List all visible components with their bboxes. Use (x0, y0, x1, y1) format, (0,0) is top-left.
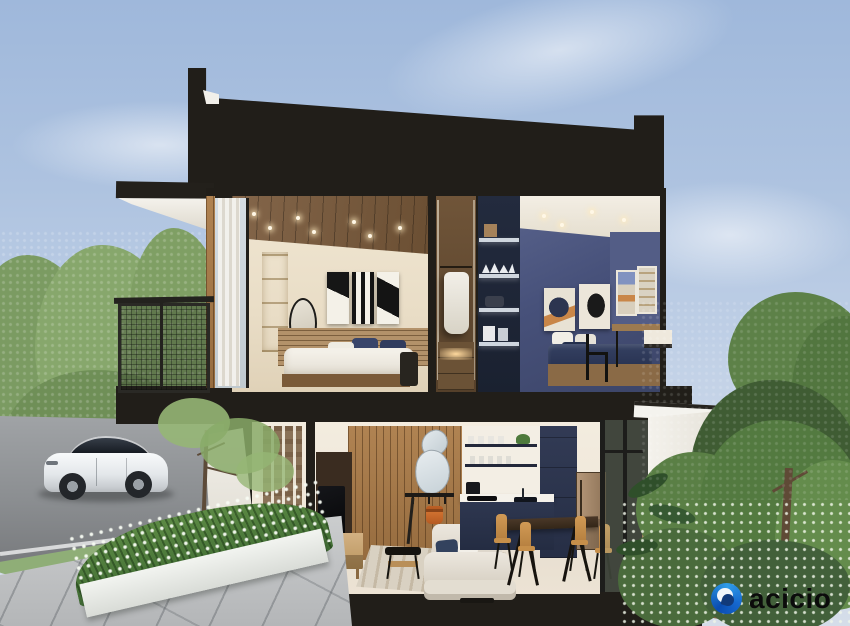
shelf-dishes (468, 436, 508, 444)
dining-chair (566, 516, 588, 596)
ceiling-light (252, 212, 256, 216)
coat-hook (444, 497, 446, 504)
artwork-triptych (327, 272, 399, 324)
decor-books (498, 328, 508, 341)
art-panel (327, 272, 349, 324)
ceiling-light (560, 223, 564, 227)
shelf-plant (516, 434, 530, 444)
coffee-table-shelf (388, 561, 418, 567)
shelf-board (479, 238, 519, 242)
bedroom-wood-ceiling (232, 196, 428, 254)
overhang-slab (116, 181, 214, 200)
artwork-bird (579, 284, 610, 329)
foliage-speckle (640, 300, 850, 500)
scene: acicio (0, 0, 850, 626)
ceiling-light (296, 216, 300, 220)
hanging-shirt (444, 272, 469, 334)
ceiling-light (368, 234, 372, 238)
shelf-board (479, 308, 519, 312)
coat-hook (428, 497, 430, 504)
kitchen-shelf (465, 464, 537, 467)
walk-in-closet (436, 196, 476, 392)
balcony-mesh-railing (118, 303, 210, 393)
kitchen-shelf (465, 444, 537, 447)
car-wheel-front (59, 473, 86, 500)
display-shelf-column (478, 196, 520, 392)
artwork-small (616, 270, 637, 316)
decor-box (484, 224, 497, 237)
dining-chair (518, 522, 540, 602)
orange-bag (426, 506, 443, 524)
overhang-soffit (118, 198, 214, 232)
brand-logo-text: acicio (749, 583, 831, 614)
balcony-post (160, 303, 163, 387)
ceiling-light (312, 230, 316, 234)
shelf-board (479, 342, 519, 346)
decor-sculpture-white (482, 262, 515, 273)
fridge-handle (580, 480, 582, 520)
dining-chair (494, 514, 516, 594)
ceiling-light (542, 214, 546, 218)
coffee-table-top (385, 547, 421, 555)
decor-object-dark (485, 296, 504, 307)
car-headlight (46, 461, 58, 465)
ceiling-light (268, 226, 272, 230)
sofa-base-foot (460, 598, 494, 603)
swirl-circle-icon (711, 583, 742, 614)
faucet (522, 488, 524, 499)
ceiling-light (590, 210, 594, 214)
ceiling-light (352, 220, 356, 224)
artwork-hat (544, 288, 575, 331)
desk-leg (616, 331, 618, 367)
chair-frame (586, 334, 589, 380)
ceiling-light (622, 218, 626, 222)
decor-books (483, 326, 495, 341)
art-panel (377, 272, 399, 324)
bed-base (282, 374, 410, 387)
brand-logo: acicio (711, 583, 831, 614)
closet-niche-glow (440, 348, 472, 360)
cooktop (467, 496, 497, 501)
chair-frame (605, 352, 608, 382)
car-door-line (96, 458, 97, 486)
closet-rail (440, 266, 472, 268)
master-bedroom (232, 196, 428, 392)
bedroom-2 (520, 196, 660, 392)
art-panel (352, 272, 374, 324)
ceiling-light (398, 226, 402, 230)
door-rail (605, 450, 643, 453)
curtain (218, 198, 240, 386)
shelf-board (479, 274, 519, 278)
nightstand (400, 352, 418, 386)
console-leg (356, 569, 359, 579)
car-wheel-rear (125, 471, 152, 498)
shelf-dishes (470, 456, 514, 464)
